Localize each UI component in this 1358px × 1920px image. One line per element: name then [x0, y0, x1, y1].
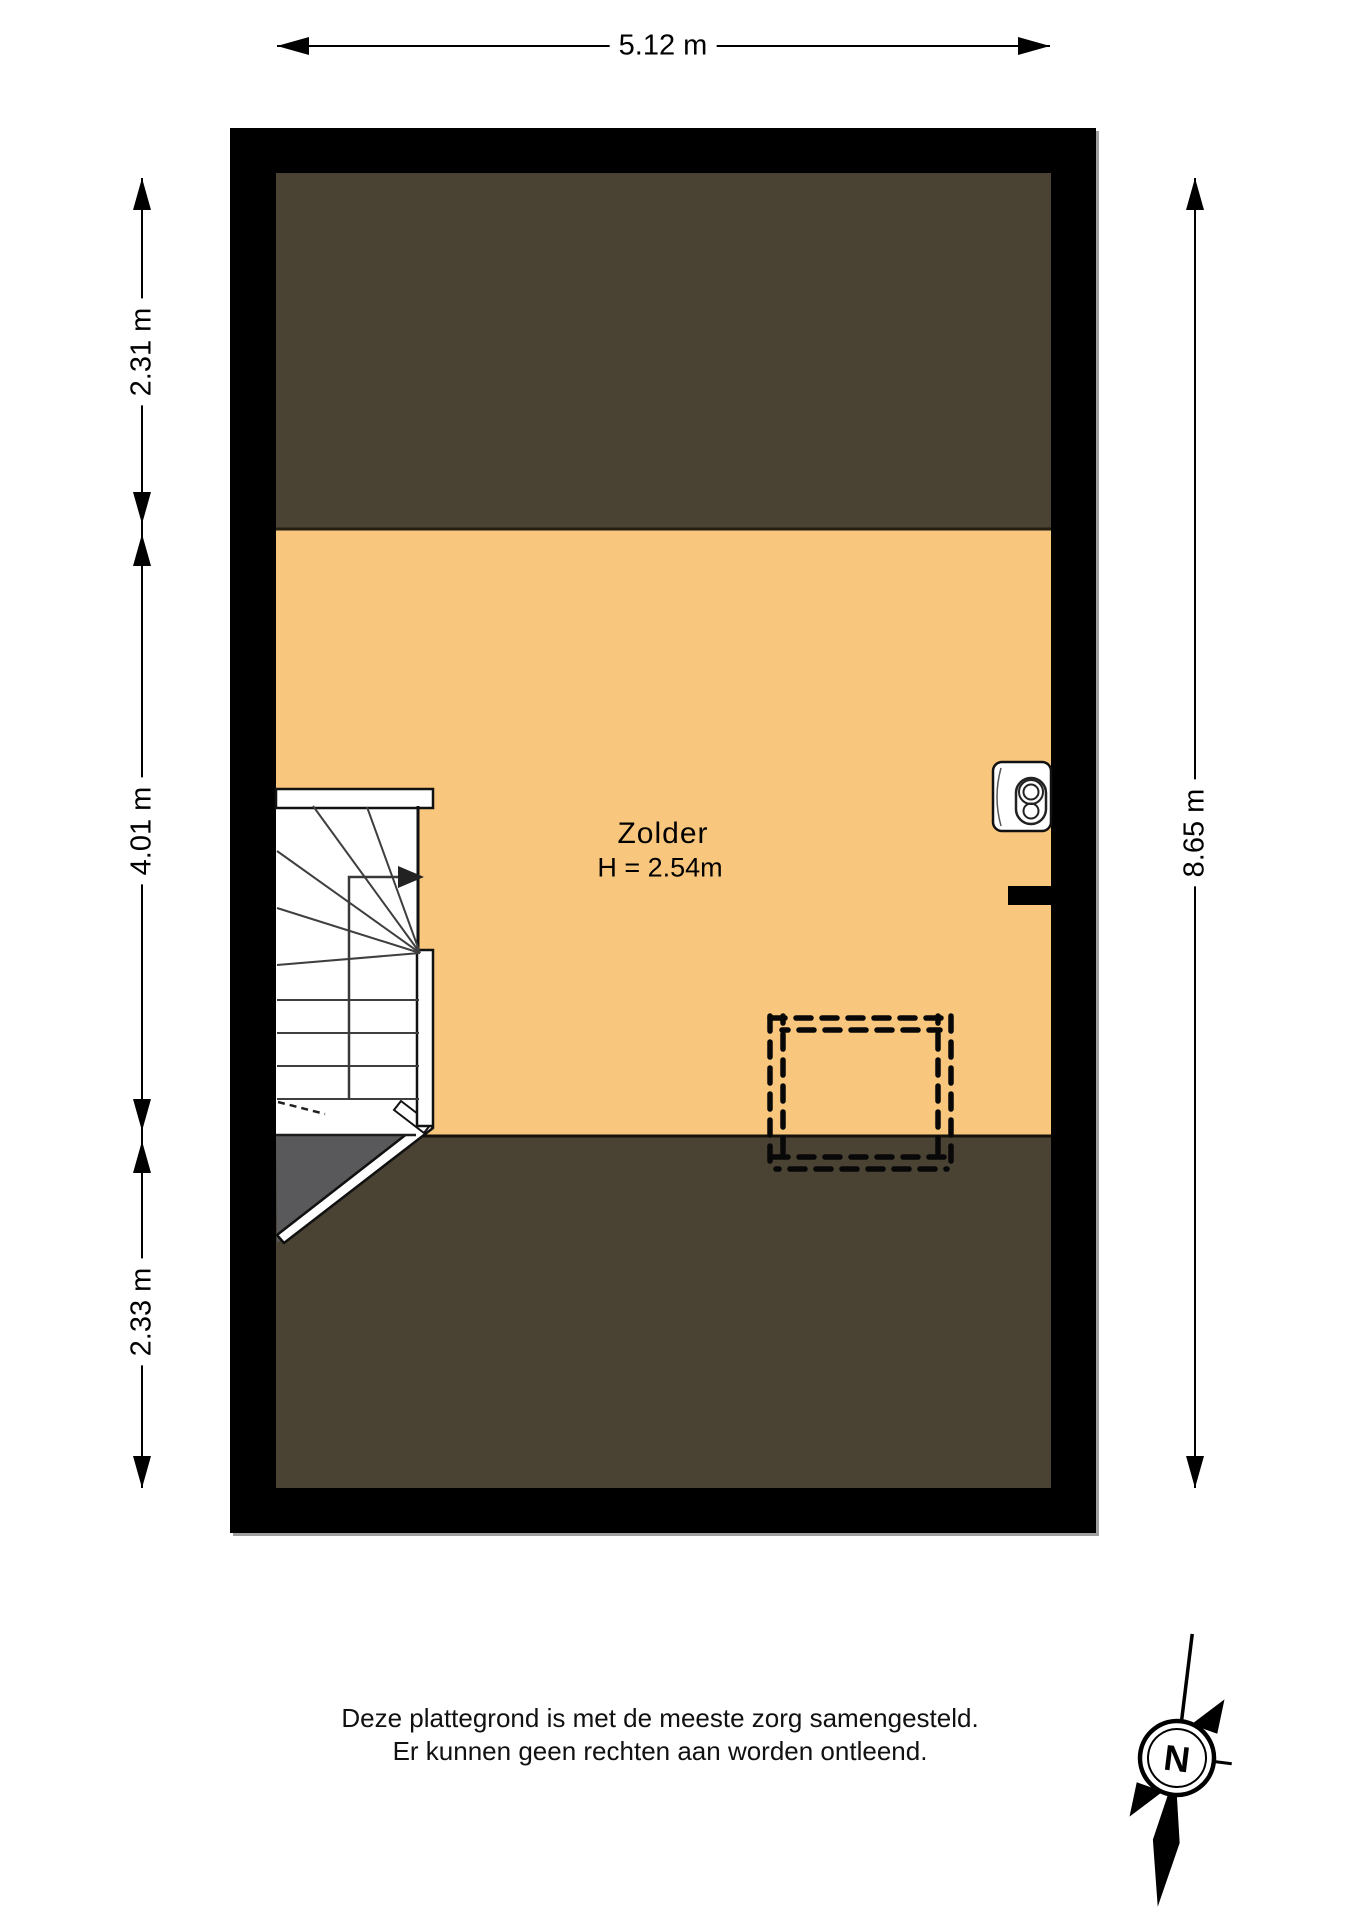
staircase — [276, 789, 433, 1243]
dimension-label-left-upper: 2.31 m — [124, 299, 161, 406]
dimension-label-left-middle: 4.01 m — [124, 778, 161, 885]
stair-side-cap-wall — [417, 950, 433, 1126]
room-label: Zolder — [617, 817, 708, 851]
arrowhead-up-icon — [133, 178, 151, 210]
arrowhead-down-icon — [133, 1456, 151, 1488]
arrowhead-right-icon — [1018, 37, 1050, 55]
dimension-label-left-lower: 2.33 m — [124, 1259, 161, 1366]
compass-needle-north — [1180, 1634, 1192, 1730]
room-height-label: H = 2.54m — [597, 853, 722, 884]
arrowhead-up-icon — [133, 534, 151, 566]
dimension-label-right: 8.65 m — [1177, 780, 1214, 887]
dimension-label-top: 5.12 m — [610, 28, 717, 65]
arrowhead-down-icon — [133, 1099, 151, 1131]
floorplan-page: N 5.12 m 2.31 m 4.01 m 2.33 m 8.65 m Zol… — [0, 0, 1358, 1920]
compass-north-label: N — [1162, 1737, 1193, 1781]
arrowhead-up-icon — [133, 1141, 151, 1173]
arrowhead-up-icon — [1186, 178, 1204, 210]
plan-linework: N — [0, 0, 1358, 1920]
disclaimer: Deze plattegrond is met de meeste zorg s… — [310, 1702, 1010, 1768]
compass-rose-icon: N — [1119, 1629, 1247, 1914]
wall-stub — [1008, 886, 1051, 905]
disclaimer-line-2: Er kunnen geen rechten aan worden ontlee… — [310, 1735, 1010, 1768]
dormer-dashed-outline — [770, 1016, 951, 1169]
disclaimer-line-1: Deze plattegrond is met de meeste zorg s… — [310, 1702, 1010, 1735]
stair-top-cap-wall — [276, 789, 433, 808]
compass-needle-south — [1145, 1791, 1186, 1908]
arrowhead-down-icon — [133, 492, 151, 524]
arrowhead-down-icon — [1186, 1456, 1204, 1488]
boiler-icon — [993, 762, 1051, 831]
arrowhead-left-icon — [277, 37, 309, 55]
compass-east-tick — [1215, 1762, 1232, 1764]
